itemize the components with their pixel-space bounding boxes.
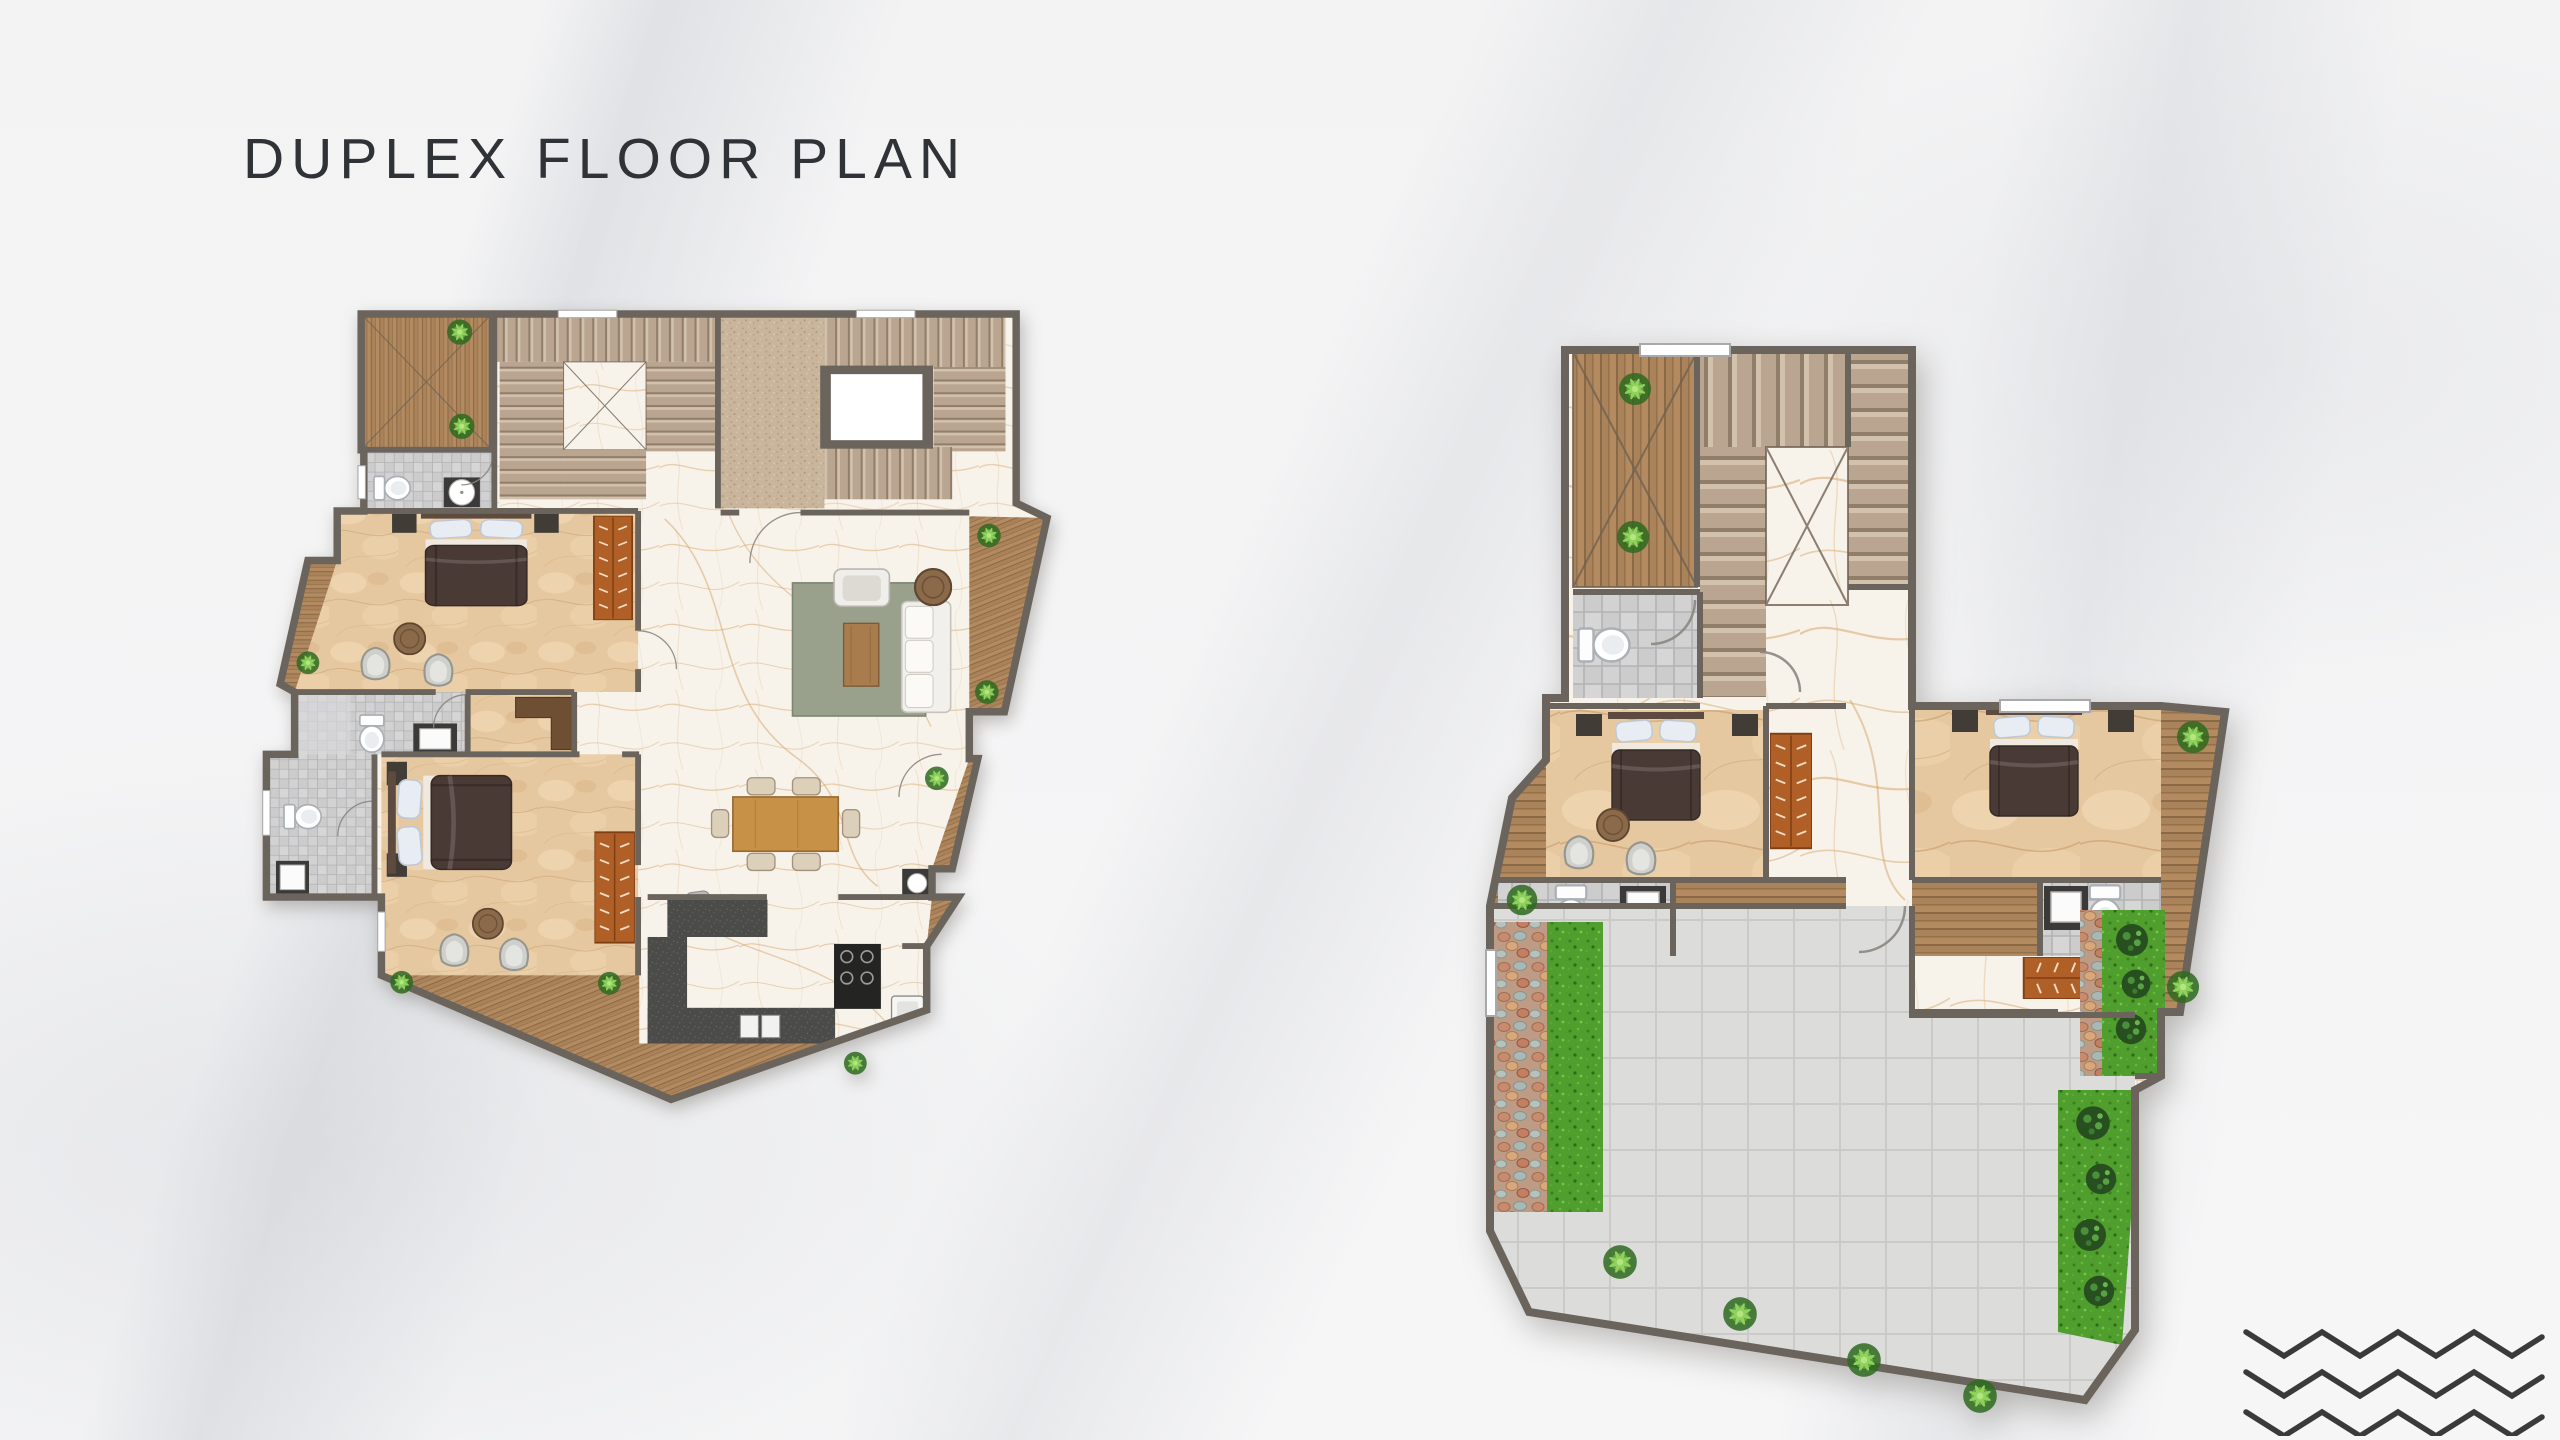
wardrobe-icon <box>594 516 632 620</box>
shrub-icon <box>2116 924 2148 956</box>
shrub-icon <box>2122 970 2151 999</box>
plant-icon <box>1963 1379 1997 1413</box>
plant-icon <box>297 651 320 674</box>
chair-icon <box>1627 842 1656 874</box>
plant-icon <box>598 972 621 995</box>
right-floor-plan <box>1470 330 2250 1420</box>
shrub-icon <box>2084 1276 2114 1306</box>
bathroom-1 <box>364 450 494 511</box>
chair-icon <box>1565 836 1594 868</box>
elevator-shaft <box>831 374 923 440</box>
chair-icon <box>440 934 468 966</box>
bathroom-top <box>1573 592 1697 698</box>
plant-icon <box>447 319 472 344</box>
bedroom-right <box>1912 706 2161 880</box>
wardrobe-icon <box>594 832 634 942</box>
zigzag-line <box>2246 1372 2542 1396</box>
nightstand-icon <box>534 514 558 533</box>
plant-icon <box>390 971 413 994</box>
brand-logo <box>2242 1318 2552 1436</box>
plant-icon <box>1603 1245 1637 1279</box>
living-room <box>792 569 951 716</box>
coffee-table-icon <box>844 623 879 686</box>
side-table-icon <box>1597 809 1629 841</box>
left-floor-plan <box>260 306 1059 1110</box>
side-table-icon <box>473 909 503 939</box>
floor-plans-graphic <box>0 0 2560 1440</box>
bathroom-2 <box>295 692 468 754</box>
plant-icon <box>1723 1297 1757 1331</box>
plant-icon <box>2177 721 2209 753</box>
plant-icon <box>844 1052 867 1075</box>
armchair-icon <box>834 569 889 606</box>
vanity-icon <box>280 865 304 889</box>
dining-table-icon <box>733 797 838 851</box>
dressing-floor <box>1912 880 2040 956</box>
lawn-right-upper <box>2080 910 2165 1076</box>
plant-icon <box>977 524 1001 548</box>
chair-icon <box>424 654 452 686</box>
toilet-icon <box>374 476 410 499</box>
bedroom-left <box>1546 710 1766 880</box>
vanity-icon <box>420 729 451 749</box>
bathroom-3 <box>266 754 374 897</box>
side-table-icon <box>915 569 951 605</box>
vanity-icon <box>2051 892 2081 922</box>
toilet-icon <box>360 715 384 752</box>
plant-icon <box>975 680 999 704</box>
chair-icon <box>362 648 390 680</box>
chair-icon <box>500 939 528 971</box>
shrub-icon <box>2086 1164 2116 1194</box>
plant-icon <box>925 766 949 790</box>
wash-nook <box>902 869 932 898</box>
zigzag-line <box>2246 1412 2542 1436</box>
zigzag-line <box>2246 1332 2542 1356</box>
dressing-area <box>468 692 575 754</box>
side-table-icon <box>394 623 425 654</box>
bedroom-1 <box>295 511 638 692</box>
wardrobe-icon <box>1770 734 1812 849</box>
plant-icon <box>449 414 474 439</box>
plant-icon <box>1507 885 1538 916</box>
shrub-icon <box>2116 1014 2146 1044</box>
plant-icon <box>1847 1343 1881 1377</box>
plant-icon <box>2167 971 2199 1003</box>
toilet-icon <box>1579 629 1630 662</box>
plant-icon <box>1617 521 1649 553</box>
basin-icon <box>908 874 927 893</box>
lawn-strip <box>1547 922 1603 1212</box>
toilet-icon <box>284 805 321 829</box>
nightstand-icon <box>392 514 416 533</box>
shrub-icon <box>2074 1219 2106 1251</box>
shrub-icon <box>2076 1106 2110 1140</box>
plant-icon <box>1619 373 1651 405</box>
pebble-strip <box>1493 922 1547 1212</box>
